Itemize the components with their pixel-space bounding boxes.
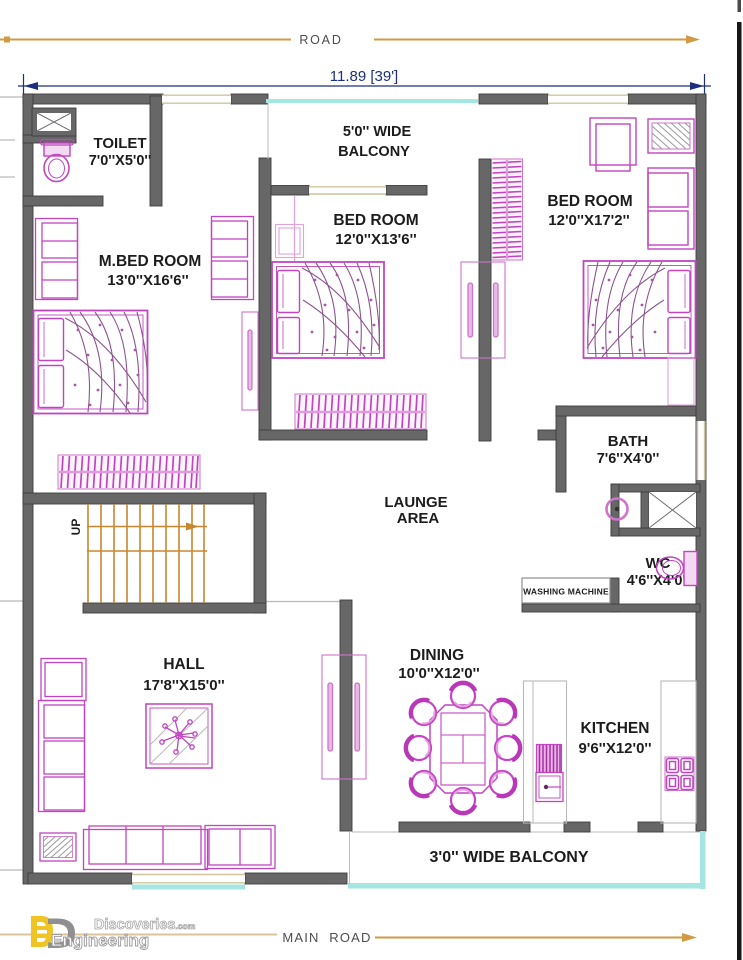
svg-text:9'6''X12'0'': 9'6''X12'0'' bbox=[578, 740, 651, 757]
svg-text:7'6''X4'0'': 7'6''X4'0'' bbox=[597, 451, 660, 467]
svg-text:17'8''X15'0'': 17'8''X15'0'' bbox=[143, 677, 224, 694]
svg-text:BALCONY: BALCONY bbox=[338, 144, 410, 160]
svg-text:10'0''X12'0'': 10'0''X12'0'' bbox=[398, 665, 479, 682]
svg-text:BATH: BATH bbox=[608, 433, 649, 450]
svg-text:3'0'' WIDE BALCONY: 3'0'' WIDE BALCONY bbox=[430, 849, 589, 866]
svg-text:ROAD: ROAD bbox=[299, 33, 342, 47]
svg-text:BED ROOM: BED ROOM bbox=[333, 212, 418, 229]
svg-text:DINING: DINING bbox=[410, 647, 464, 664]
svg-text:UP: UP bbox=[69, 519, 83, 536]
svg-text:BED ROOM: BED ROOM bbox=[547, 193, 632, 210]
svg-text:5'0'' WIDE: 5'0'' WIDE bbox=[343, 124, 412, 140]
svg-text:MAIN ROAD: MAIN ROAD bbox=[282, 930, 371, 945]
svg-text:AREA: AREA bbox=[397, 510, 440, 527]
svg-text:TOILET: TOILET bbox=[93, 135, 146, 152]
svg-text:12'0''X13'6'': 12'0''X13'6'' bbox=[335, 231, 416, 248]
svg-text:13'0''X16'6'': 13'0''X16'6'' bbox=[107, 272, 188, 289]
svg-text:HALL: HALL bbox=[163, 656, 204, 673]
svg-text:11.89 [39']: 11.89 [39'] bbox=[330, 68, 398, 85]
svg-text:M.BED ROOM: M.BED ROOM bbox=[99, 253, 201, 270]
svg-text:7'0''X5'0'': 7'0''X5'0'' bbox=[89, 153, 152, 169]
svg-text:Engineering: Engineering bbox=[51, 931, 149, 950]
svg-text:LAUNGE: LAUNGE bbox=[384, 494, 447, 511]
svg-text:KITCHEN: KITCHEN bbox=[581, 720, 650, 737]
svg-text:12'0''X17'2'': 12'0''X17'2'' bbox=[548, 212, 629, 229]
svg-text:WASHING MACHINE: WASHING MACHINE bbox=[523, 587, 609, 597]
